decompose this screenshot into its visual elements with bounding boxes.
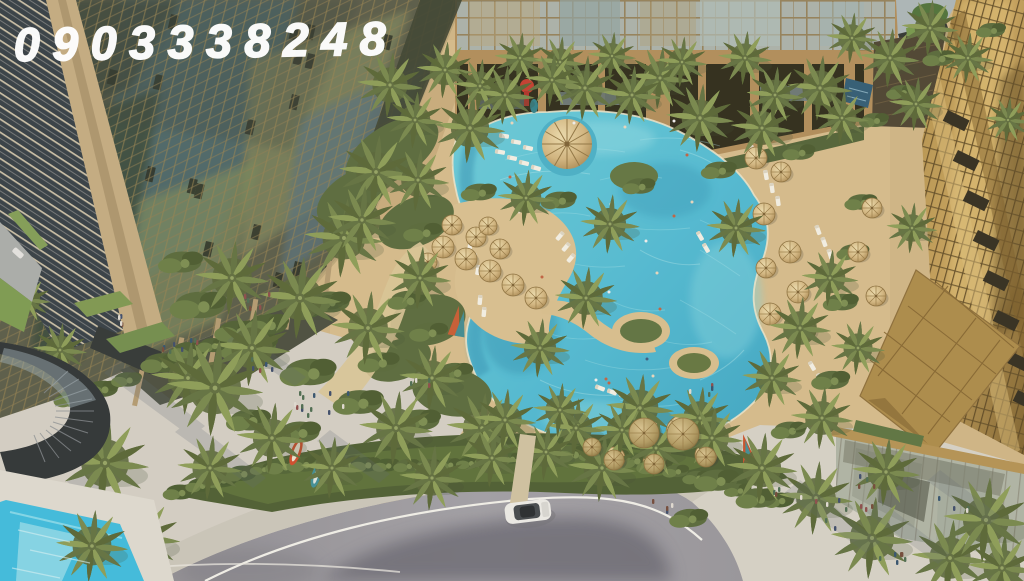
svg-text:0903338248: 0903338248 bbox=[13, 11, 398, 71]
